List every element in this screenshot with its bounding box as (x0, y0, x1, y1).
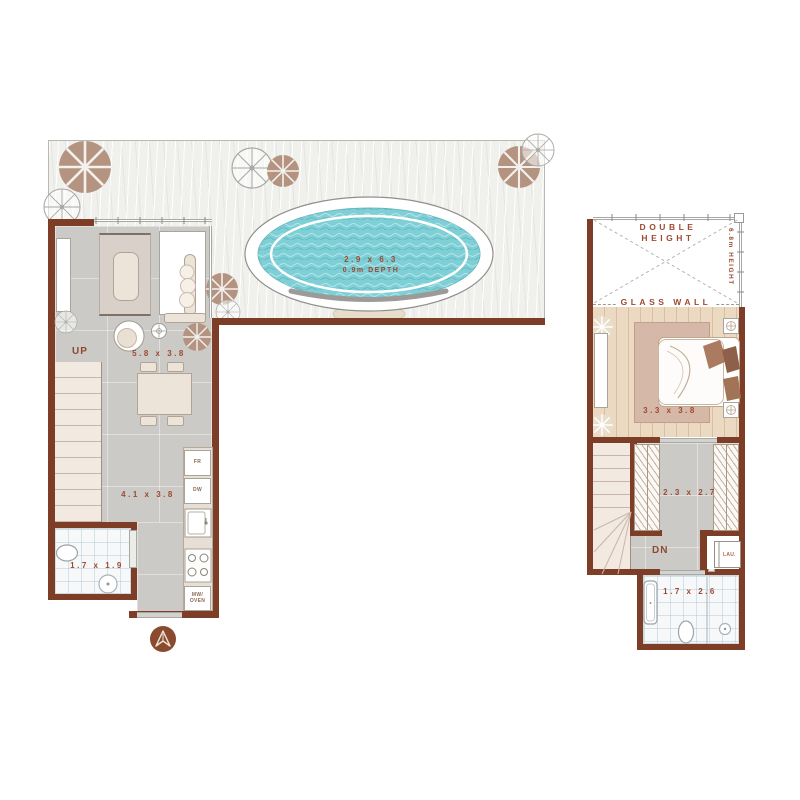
floor-plan-canvas: UP 5.8 x 3.8 4.1 x 3.8 1.7 x 1.9 FR DW M… (0, 0, 800, 800)
living-glass-wall (209, 226, 212, 318)
daybed-backrest (184, 254, 196, 316)
wall-segment (212, 318, 219, 618)
coffee-table (113, 252, 139, 301)
bathroom1-door (129, 530, 137, 568)
pool-depth-label: 0.9m DEPTH (343, 267, 400, 274)
wall-segment (131, 564, 137, 600)
bathroom2-door (660, 570, 705, 575)
wall-segment (587, 219, 593, 575)
wall-segment (587, 437, 660, 443)
wall-segment (717, 437, 745, 443)
fridge-label: FR (184, 459, 211, 465)
nightstand (723, 318, 739, 334)
double-height-label: DOUBLE HEIGHT (640, 222, 697, 244)
wall-segment (48, 594, 137, 600)
north-compass (150, 626, 176, 652)
void-side-glazing (739, 219, 742, 307)
tv-console (56, 238, 71, 312)
dining-chair (167, 416, 184, 426)
dining-table (137, 373, 192, 415)
bathroom1-dimension: 1.7 x 1.9 (70, 561, 124, 570)
wall-segment (48, 522, 137, 528)
daybed (159, 231, 206, 315)
stairs-up (55, 362, 102, 525)
entry-door (137, 612, 182, 618)
nightstand (723, 402, 739, 418)
dishwasher-label: DW (184, 487, 211, 493)
laundry-label: LAU. (723, 552, 736, 558)
wardrobe-dimension: 2.3 x 2.7 (663, 488, 717, 497)
stairs-winder (593, 510, 631, 575)
bedroom-tv-console (594, 333, 608, 408)
dining-chair (167, 362, 184, 372)
wall-segment (48, 219, 94, 226)
wall-segment (587, 569, 660, 575)
living-dining-dimension: 5.8 x 3.8 (132, 349, 186, 358)
bed-duvet (658, 339, 724, 405)
wall-segment (212, 318, 545, 325)
wall-segment (637, 575, 643, 650)
stairs-down-label: DN (652, 545, 668, 556)
corner-column (734, 213, 744, 223)
wardrobe-right (713, 444, 739, 531)
void-top-glazing (593, 217, 739, 220)
dining-chair (140, 416, 157, 426)
bathroom2-floor (643, 575, 739, 644)
living-window (94, 219, 212, 222)
dining-chair (140, 362, 157, 372)
microwave-oven-label: MW/ OVEN (184, 592, 211, 604)
wall-segment (48, 219, 55, 600)
bathroom2-dimension: 1.7 x 2.6 (663, 587, 717, 596)
bedroom-door (660, 438, 717, 443)
daybed-bench (164, 313, 206, 323)
kitchen-dimension: 4.1 x 3.8 (121, 490, 175, 499)
glass-wall-label: GLASS WALL (617, 297, 716, 307)
wall-segment (637, 644, 745, 650)
ceiling-height-label: 6.8m HEIGHT (727, 228, 734, 304)
bedroom-dimension: 3.3 x 3.8 (643, 406, 697, 415)
stairs-up-label: UP (72, 346, 88, 357)
stairs-down (593, 443, 631, 510)
pool-dimension: 2.9 x 6.3 (344, 255, 398, 264)
wardrobe-left (634, 444, 660, 531)
